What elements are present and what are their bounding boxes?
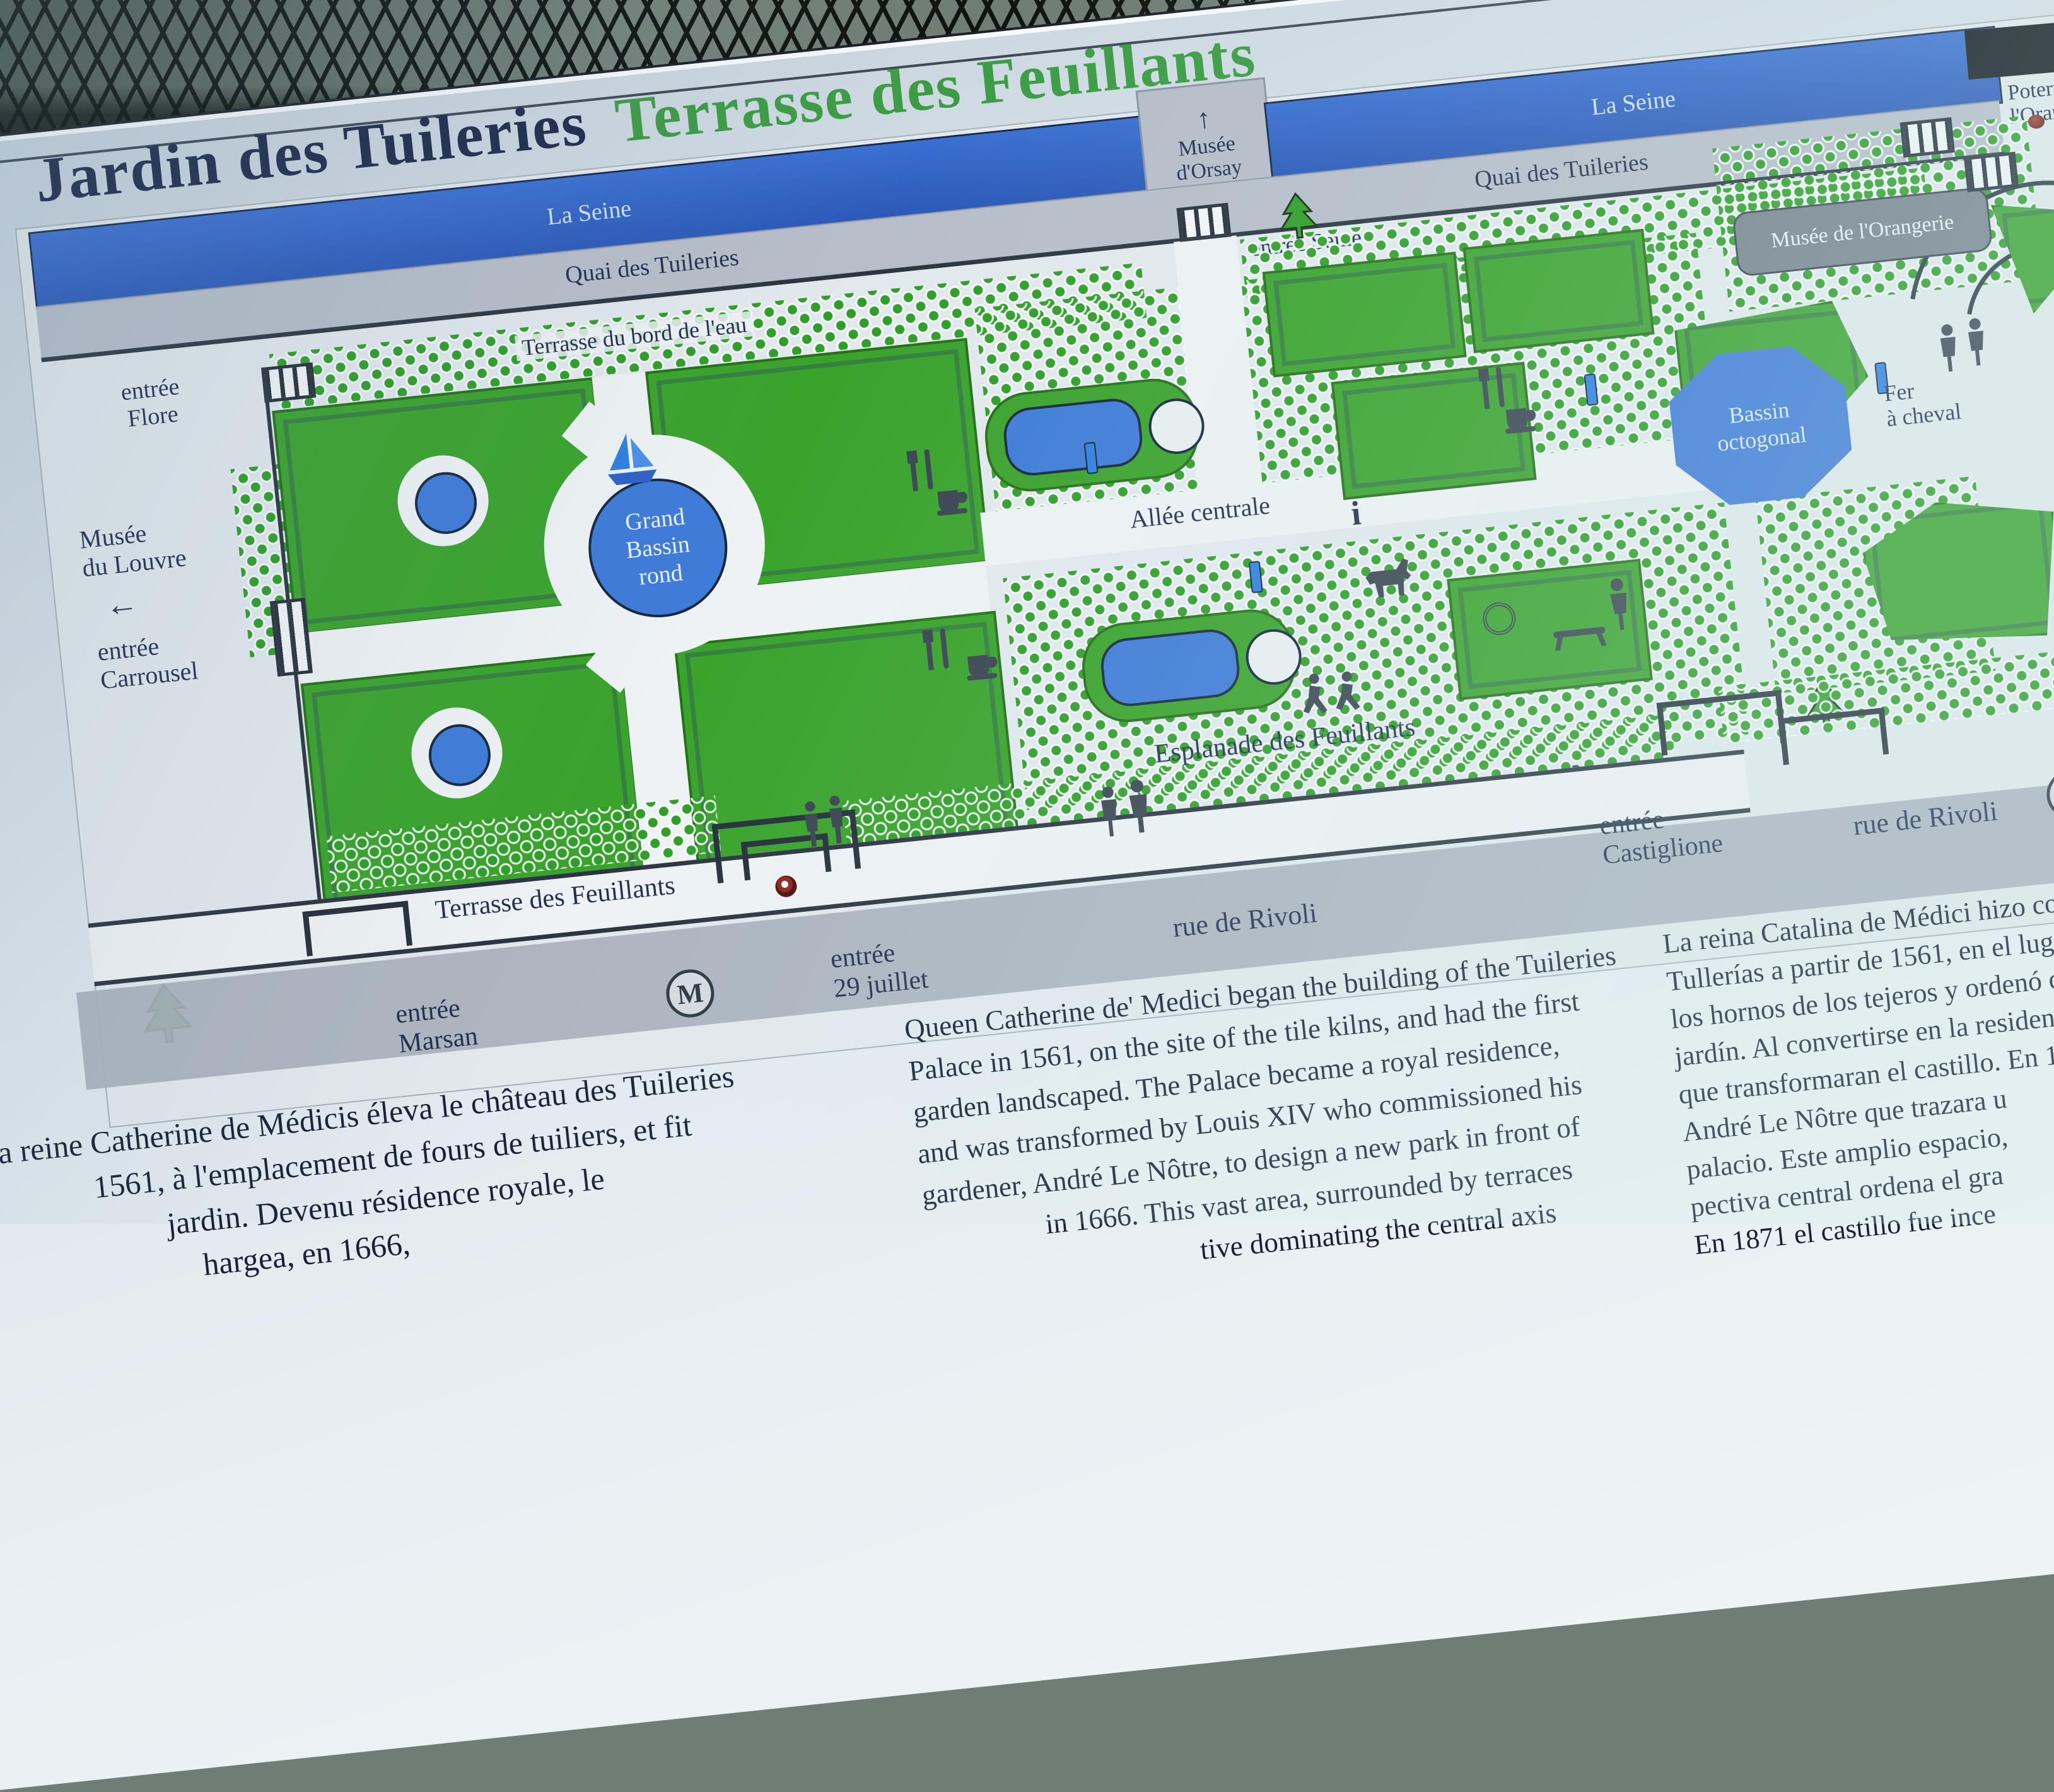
up-arrow-icon: ↑	[1195, 103, 1212, 135]
cafe-icon-2	[963, 648, 1004, 682]
lawn-top-2	[1463, 229, 1655, 353]
restaurant-icon-2	[919, 624, 960, 673]
bassin-octogonal-label: Bassin octogonal	[1713, 395, 1808, 457]
corner-sticker	[1964, 23, 2054, 80]
cafe-icon-1	[933, 484, 974, 518]
stairs-flore	[261, 363, 316, 403]
lawn-top-1	[1263, 252, 1467, 377]
trampoline-icon	[1549, 616, 1609, 653]
grand-bassin-label: Grand Bassin rond	[622, 504, 694, 593]
sign-bolt	[2028, 115, 2045, 129]
paragraph-spanish: La reina Catalina de Médici hizo constru…	[1661, 878, 2054, 1264]
cafe-icon-3	[1502, 402, 1543, 436]
tuileries-info-sign: Jardin des Tuileries Terrasse des Feuill…	[0, 0, 2054, 1792]
entree-29-juillet-label: entrée 29 juillet	[829, 935, 930, 1004]
pony-ride-icon	[1357, 557, 1418, 605]
sailboat-icon	[601, 428, 661, 491]
statue-icon-mid	[1602, 576, 1637, 636]
runners-icon	[1298, 666, 1372, 718]
left-arrow-icon: ←	[103, 585, 140, 625]
musee-orsay-label: Musée d'Orsay	[1173, 131, 1244, 186]
entree-carrousel-label: entrée Carrousel	[96, 629, 199, 695]
entree-flore-label: entrée Flore	[120, 373, 184, 433]
entree-marsan-label: entrée Marsan	[394, 992, 479, 1059]
statue-icon-right-2	[1962, 317, 1993, 372]
musee-louvre-label: Musée du Louvre	[78, 516, 188, 583]
musee-orangerie-label: Musée de l'Orangerie	[1770, 210, 1956, 253]
seine-label-left: La Seine	[546, 195, 633, 230]
seine-label-right: La Seine	[1590, 85, 1677, 120]
statue-icon-gate-2	[1123, 778, 1156, 839]
stairs-poterne-1	[1900, 117, 1955, 158]
tree-icon-top	[1276, 190, 1319, 242]
entree-castiglione-label: entrée Castiglione	[1598, 799, 1724, 871]
